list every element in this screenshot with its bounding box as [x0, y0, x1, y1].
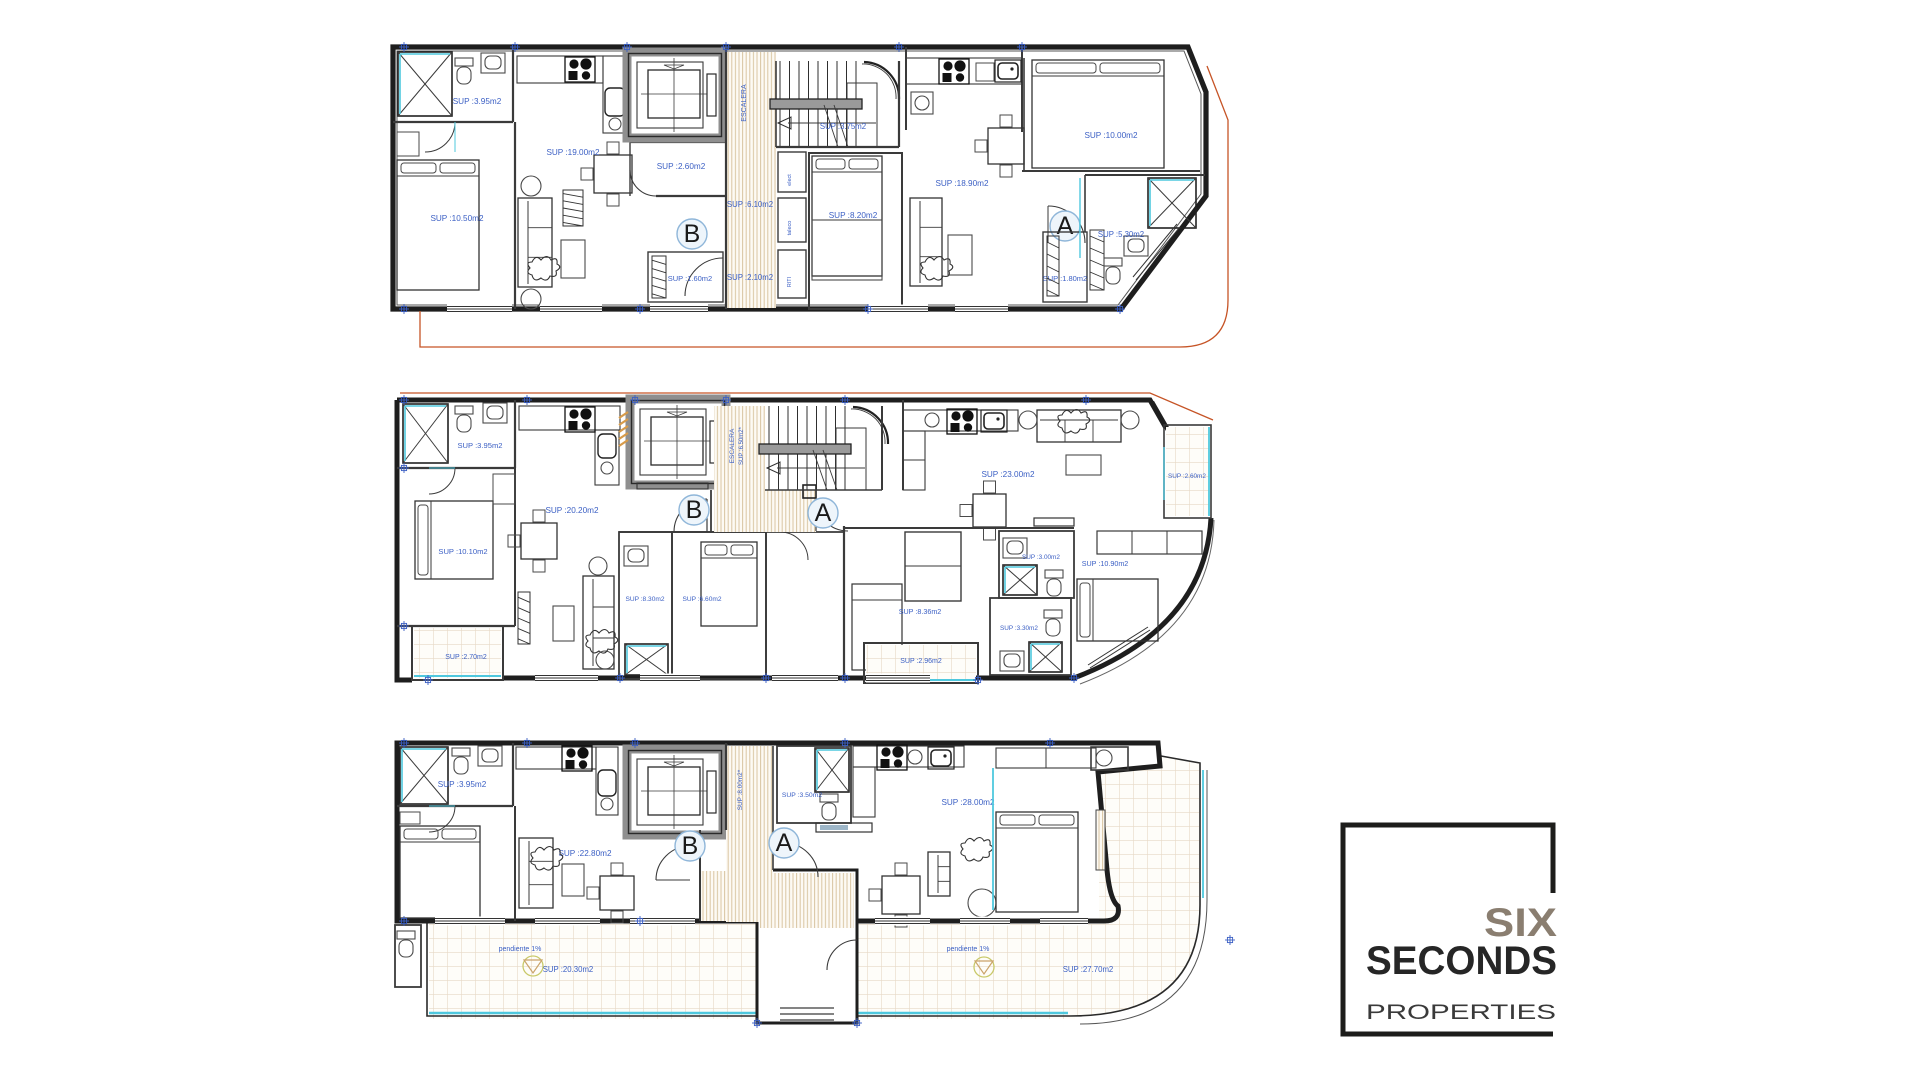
svg-text:SUP :3.95m2: SUP :3.95m2 [453, 97, 502, 106]
svg-text:ESCALERA: ESCALERA [741, 84, 748, 122]
svg-text:SUP :20.30m2: SUP :20.30m2 [543, 965, 594, 974]
svg-text:SUP :2.10m2: SUP :2.10m2 [727, 273, 773, 282]
svg-text:SUP :6.10m2: SUP :6.10m2 [727, 200, 773, 209]
svg-text:SUP :1.80m2: SUP :1.80m2 [1043, 274, 1087, 283]
svg-text:SUP :27.70m2: SUP :27.70m2 [1063, 965, 1114, 974]
svg-text:ESCALERA: ESCALERA [729, 428, 736, 463]
svg-text:SUP :23.00m2: SUP :23.00m2 [981, 470, 1035, 479]
svg-text:SUP :28.00m2: SUP :28.00m2 [941, 798, 995, 807]
svg-text:SUP :22.80m2: SUP :22.80m2 [558, 849, 612, 858]
svg-text:B: B [684, 220, 701, 248]
svg-text:SUP :6.60m2: SUP :6.60m2 [682, 596, 721, 603]
svg-text:SUP :3.95m2: SUP :3.95m2 [438, 780, 487, 789]
svg-text:SUP :8.20m2: SUP :8.20m2 [829, 211, 878, 220]
svg-text:SUP :2.60m2: SUP :2.60m2 [1168, 473, 1206, 480]
svg-text:SUP :20.20m2: SUP :20.20m2 [545, 506, 599, 515]
svg-text:SUP :3.00m2: SUP :3.00m2 [1022, 554, 1060, 561]
svg-text:SUP :3.50m2: SUP :3.50m2 [782, 792, 823, 799]
svg-text:SUP :1.60m2: SUP :1.60m2 [668, 274, 712, 283]
svg-text:SUP :5.30m2: SUP :5.30m2 [1098, 230, 1144, 239]
svg-text:SUP :10.50m2: SUP :10.50m2 [430, 214, 484, 223]
svg-text:SUP :19.00m2: SUP :19.00m2 [546, 148, 600, 157]
svg-text:SUP :8.30m2: SUP :8.30m2 [625, 596, 664, 603]
svg-text:SUP :8.00m2*: SUP :8.00m2* [737, 769, 744, 810]
svg-text:SUP :3.95m2: SUP :3.95m2 [457, 441, 502, 450]
svg-text:A: A [815, 499, 832, 527]
svg-text:SUP :10.10m2: SUP :10.10m2 [438, 547, 487, 556]
svg-text:PROPERTIES: PROPERTIES [1366, 1001, 1556, 1024]
svg-text:RITI: RITI [787, 276, 793, 287]
svg-text:SUP :10.00m2: SUP :10.00m2 [1084, 131, 1138, 140]
svg-text:B: B [686, 496, 703, 524]
svg-text:SUP :2.70m2: SUP :2.70m2 [445, 654, 487, 661]
svg-text:SUP :3.30m2: SUP :3.30m2 [1000, 625, 1038, 632]
svg-text:SUP :18.90m2: SUP :18.90m2 [935, 179, 989, 188]
svg-text:SUP :6.50m2*: SUP :6.50m2* [739, 426, 745, 465]
svg-text:SUP :2.96m2: SUP :2.96m2 [900, 658, 942, 665]
svg-text:taleco: taleco [787, 221, 793, 236]
svg-text:B: B [682, 832, 699, 860]
svg-text:SECONDS: SECONDS [1366, 939, 1557, 983]
svg-text:SUP :3.75m2: SUP :3.75m2 [820, 122, 866, 131]
svg-text:SUP :10.90m2: SUP :10.90m2 [1082, 559, 1129, 568]
svg-text:SUP :8.36m2: SUP :8.36m2 [899, 607, 942, 616]
svg-text:pendiente 1%: pendiente 1% [947, 946, 990, 953]
svg-text:elect: elect [787, 174, 793, 186]
svg-text:A: A [776, 829, 793, 857]
svg-text:pendiente 1%: pendiente 1% [499, 946, 542, 953]
svg-text:SUP :2.60m2: SUP :2.60m2 [657, 162, 706, 171]
